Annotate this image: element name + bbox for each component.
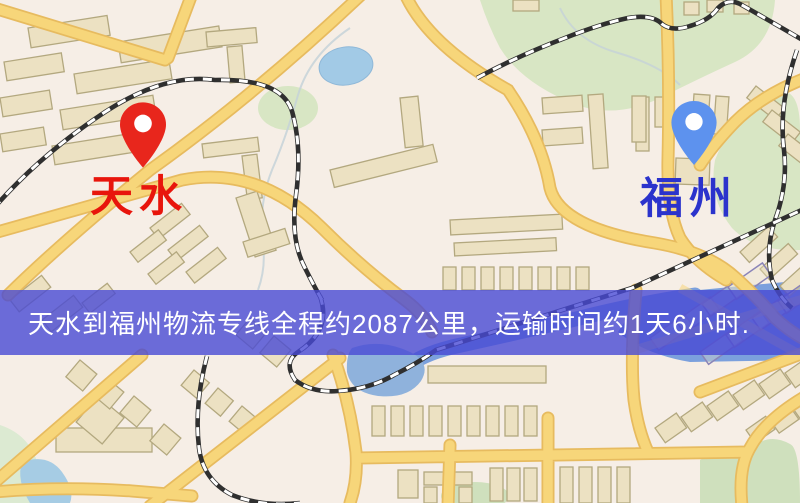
destination-city-label: 福州 [640,178,738,221]
map-viewport: 天水 福州 天水到福州物流专线全程约2087公里，运输时间约1天6小时. [0,0,800,503]
route-info-banner: 天水到福州物流专线全程约2087公里，运输时间约1天6小时. [0,290,800,355]
origin-city-label: 天水 [90,176,188,219]
origin-pin-icon[interactable] [120,102,166,168]
route-info-text: 天水到福州物流专线全程约2087公里，运输时间约1天6小时. [28,304,750,341]
map-canvas[interactable] [0,0,800,503]
destination-pin-icon[interactable] [671,101,717,165]
